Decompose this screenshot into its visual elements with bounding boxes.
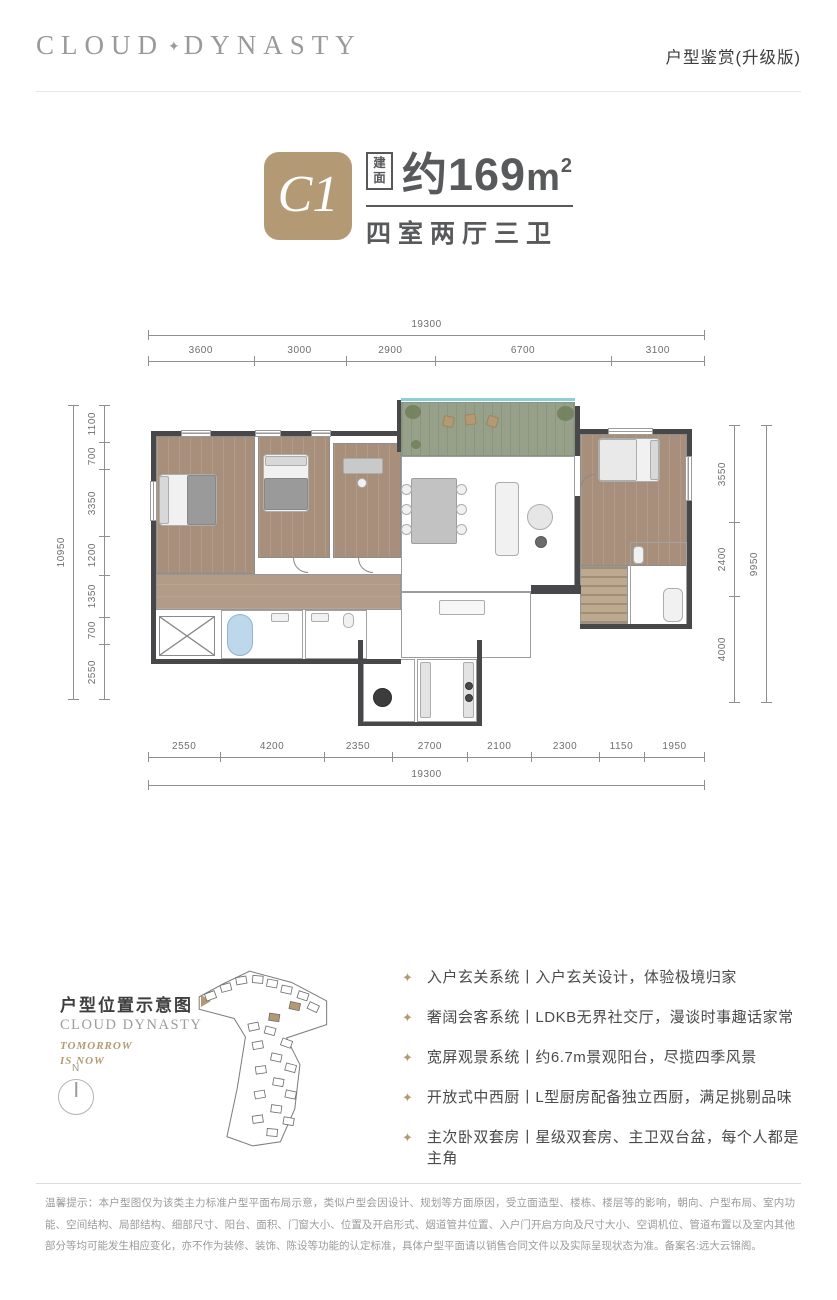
unit-badge: C1 xyxy=(264,152,352,240)
building-footprint xyxy=(252,975,263,983)
unit-divider xyxy=(366,205,573,207)
area-number: 约169 xyxy=(402,149,526,200)
area-label-box: 建面 xyxy=(366,152,393,190)
dim-label: 4200 xyxy=(220,740,323,752)
room-hallway xyxy=(156,574,401,610)
plant-icon xyxy=(411,440,421,449)
building-footprint xyxy=(252,1041,263,1050)
chair-icon xyxy=(456,504,467,515)
header-divider xyxy=(36,91,801,92)
dim-segment: 4200 xyxy=(220,740,323,762)
dim-label: 2350 xyxy=(324,740,393,752)
building-footprint xyxy=(283,1117,294,1126)
compass-needle xyxy=(75,1082,77,1097)
door-arc-icon xyxy=(293,558,308,573)
balcony-chair-icon xyxy=(442,415,455,428)
unit-rooms: 四室两厅三卫 xyxy=(366,214,573,250)
slogan-line-1: TOMORROW xyxy=(60,1039,133,1054)
chair-icon xyxy=(401,504,412,515)
feature-item: ✦主次卧双套房丨星级双套房、主卫双台盆，每个人都是主角 xyxy=(402,1127,801,1169)
dim-segment: 19300 xyxy=(148,768,705,790)
dim-label: 19300 xyxy=(148,768,705,780)
dim-label: 6700 xyxy=(435,344,611,356)
dim-label: 3350 xyxy=(87,491,98,515)
window-icon xyxy=(150,481,157,521)
balcony-chair-icon xyxy=(464,413,476,425)
dim-label: 2550 xyxy=(148,740,220,752)
site-plan-map xyxy=(196,965,336,1150)
dim-segment: 4000 xyxy=(716,596,742,703)
bed-pillow-icon xyxy=(159,476,169,524)
wall xyxy=(531,585,581,594)
dim-label: 19300 xyxy=(148,318,705,330)
dim-label: 3100 xyxy=(611,344,705,356)
footer-divider xyxy=(36,1183,801,1184)
building-footprint xyxy=(252,1115,263,1124)
dim-top-total: 19300 xyxy=(148,318,705,340)
dim-label: 2700 xyxy=(392,740,467,752)
dim-label: 2300 xyxy=(531,740,599,752)
star-bullet-icon: ✦ xyxy=(402,1127,413,1148)
logo-word-left: CLOUD xyxy=(36,30,164,60)
door-arc-icon xyxy=(358,558,373,573)
feature-item: ✦宽屏观景系统丨约6.7m景观阳台，尽揽四季风景 xyxy=(402,1047,801,1068)
unit-banner: C1 建面 约169m2 四室两厅三卫 xyxy=(0,152,837,250)
bed-pillow-icon xyxy=(265,456,307,466)
stove-burner-icon xyxy=(465,694,473,702)
wall xyxy=(151,659,401,664)
elevator-shaft xyxy=(159,616,215,656)
dim-label: 2900 xyxy=(346,344,436,356)
dim-segment: 6700 xyxy=(435,344,611,366)
feature-text: 入户玄关系统丨入户玄关设计，体验极境归家 xyxy=(427,967,737,988)
dim-right-total: 9950 xyxy=(748,425,774,703)
disclaimer-text: 温馨提示：本户型图仅为该类主力标准户型平面布局示意，类似户型会因设计、规划等方面… xyxy=(45,1193,795,1258)
dim-segment: 1150 xyxy=(599,740,644,762)
washing-machine-icon xyxy=(373,688,392,707)
dim-label: 10950 xyxy=(56,537,67,567)
dim-segment: 2550 xyxy=(86,644,112,700)
feature-item: ✦奢阔会客系统丨LDKB无界社交厅，漫谈时事趣话家常 xyxy=(402,1007,801,1028)
highlighted-building xyxy=(269,1013,280,1022)
dim-bottom-total: 19300 xyxy=(148,768,705,790)
feature-text: 奢阔会客系统丨LDKB无界社交厅，漫谈时事趣话家常 xyxy=(427,1007,794,1028)
room-balcony xyxy=(401,402,575,456)
dim-segment: 3350 xyxy=(86,469,112,536)
stool-icon xyxy=(535,536,547,548)
dim-segment: 700 xyxy=(86,442,112,469)
balcony-glass-rail xyxy=(401,398,575,401)
feature-item: ✦开放式中西厨丨L型厨房配备独立西厨，满足挑剔品味 xyxy=(402,1087,801,1108)
dim-segment: 2300 xyxy=(531,740,599,762)
bed-blanket-icon xyxy=(599,439,637,481)
dim-label: 3550 xyxy=(717,462,728,486)
floor-plan-section: 19300 36003000290067003100 2550420023502… xyxy=(0,310,837,810)
toilet-icon xyxy=(343,613,354,628)
page-title: 户型鉴赏(升级版) xyxy=(666,44,802,68)
dim-segment: 3550 xyxy=(716,425,742,522)
star-icon: ✦ xyxy=(164,40,184,55)
building-footprint xyxy=(297,991,309,1001)
wall xyxy=(477,640,482,726)
sofa-icon xyxy=(495,482,519,556)
dim-label: 2400 xyxy=(717,547,728,571)
area-unit: m xyxy=(526,157,561,199)
logo-word-right: DYNASTY xyxy=(184,30,362,60)
window-icon xyxy=(311,430,331,437)
desk-icon xyxy=(343,458,383,474)
dim-right-segments: 355024004000 xyxy=(716,425,742,703)
building-footprint xyxy=(307,1002,319,1013)
building-footprint xyxy=(285,1063,297,1073)
window-icon xyxy=(685,456,692,501)
plant-icon xyxy=(405,405,421,419)
room-master-closet xyxy=(580,566,628,624)
chair-icon xyxy=(456,524,467,535)
location-title: 户型位置示意图 xyxy=(60,991,193,1016)
dim-label: 700 xyxy=(87,447,98,465)
wall xyxy=(358,640,363,726)
star-bullet-icon: ✦ xyxy=(402,1007,413,1028)
dim-segment: 9950 xyxy=(748,425,774,703)
window-icon xyxy=(255,430,281,437)
bed-blanket-icon xyxy=(187,475,216,525)
dim-top-segments: 36003000290067003100 xyxy=(148,344,705,366)
dim-segment: 700 xyxy=(86,617,112,644)
dim-label: 3000 xyxy=(254,344,346,356)
dim-label: 2550 xyxy=(87,660,98,684)
compass-n-label: N xyxy=(72,1063,79,1074)
dim-label: 2100 xyxy=(467,740,531,752)
wall xyxy=(151,431,156,664)
dim-segment: 3000 xyxy=(254,344,346,366)
plant-icon xyxy=(557,406,574,421)
dim-segment: 3100 xyxy=(611,344,705,366)
sink-icon xyxy=(633,546,644,564)
kitchen-island-icon xyxy=(439,600,485,615)
dim-label: 700 xyxy=(87,621,98,639)
star-bullet-icon: ✦ xyxy=(402,1047,413,1068)
star-bullet-icon: ✦ xyxy=(402,1087,413,1108)
dim-label: 1200 xyxy=(87,543,98,567)
stove-burner-icon xyxy=(465,682,473,690)
unit-area: 约169m2 xyxy=(402,152,573,197)
wall xyxy=(397,400,401,452)
bed-pillow-icon xyxy=(650,440,659,480)
dim-label: 9950 xyxy=(749,552,760,576)
window-icon xyxy=(608,428,653,435)
dim-segment: 1200 xyxy=(86,536,112,575)
slogan-line-2: IS NOW xyxy=(60,1054,133,1069)
dim-segment: 2550 xyxy=(148,740,220,762)
bed-blanket-icon xyxy=(264,478,308,510)
feature-text: 开放式中西厨丨L型厨房配备独立西厨，满足挑剔品味 xyxy=(427,1087,792,1108)
building-footprint xyxy=(273,1078,284,1087)
dim-left-segments: 11007003350120013507002550 xyxy=(86,405,112,700)
bathtub-icon xyxy=(227,614,253,656)
elevator-x-icon xyxy=(160,617,214,655)
brand-logo: CLOUD✦DYNASTY xyxy=(36,30,362,61)
building-footprint xyxy=(285,1090,297,1099)
bathtub-icon xyxy=(663,588,683,622)
location-slogan: TOMORROW IS NOW xyxy=(60,1039,133,1070)
dim-segment: 1950 xyxy=(644,740,705,762)
building-footprint xyxy=(254,1090,265,1099)
dim-bottom-segments: 25504200235027002100230011501950 xyxy=(148,740,705,762)
building-footprint xyxy=(264,1026,276,1036)
dim-label: 1150 xyxy=(599,740,644,752)
chair-icon xyxy=(456,484,467,495)
dim-segment: 1350 xyxy=(86,575,112,616)
dim-segment: 2700 xyxy=(392,740,467,762)
kitchen-counter-icon xyxy=(420,662,431,718)
dining-table-icon xyxy=(411,478,457,544)
building-footprint xyxy=(271,1105,282,1114)
dim-label: 3600 xyxy=(148,344,254,356)
feature-item: ✦入户玄关系统丨入户玄关设计，体验极境归家 xyxy=(402,967,801,988)
floor-plan xyxy=(143,396,700,728)
building-footprint xyxy=(204,991,216,1001)
building-footprint xyxy=(280,1038,292,1048)
dim-segment: 19300 xyxy=(148,318,705,340)
building-footprint xyxy=(271,1053,283,1062)
unit-area-row: 建面 约169m2 xyxy=(366,152,573,197)
dim-segment: 2100 xyxy=(467,740,531,762)
feature-list: ✦入户玄关系统丨入户玄关设计，体验极境归家✦奢阔会客系统丨LDKB无界社交厅，漫… xyxy=(402,967,801,1188)
dim-segment: 10950 xyxy=(55,405,81,700)
brochure-page: CLOUD✦DYNASTY 户型鉴赏(升级版) C1 建面 约169m2 四室两… xyxy=(0,0,837,1300)
dim-label: 1100 xyxy=(87,412,98,436)
dim-segment: 3600 xyxy=(148,344,254,366)
dim-segment: 2900 xyxy=(346,344,436,366)
wall xyxy=(580,624,692,629)
sink-icon xyxy=(311,613,329,622)
location-brand: CLOUD DYNASTY xyxy=(60,1017,202,1034)
bottom-section: 户型位置示意图 CLOUD DYNASTY TOMORROW IS NOW N … xyxy=(36,955,801,1175)
star-bullet-icon: ✦ xyxy=(402,967,413,988)
building-footprint xyxy=(236,976,247,985)
building-footprint xyxy=(281,985,293,994)
kitchen-counter-icon xyxy=(463,662,474,718)
building-footprint xyxy=(255,1066,266,1075)
compass-icon xyxy=(58,1079,94,1115)
chair-icon xyxy=(357,478,367,488)
chair-icon xyxy=(401,484,412,495)
dim-segment: 2400 xyxy=(716,522,742,596)
building-footprint xyxy=(248,1022,260,1031)
wall xyxy=(575,496,580,592)
window-icon xyxy=(181,430,211,437)
sink-icon xyxy=(271,613,289,622)
dim-segment: 1100 xyxy=(86,405,112,442)
coffee-table-icon xyxy=(527,504,553,530)
feature-text: 宽屏观景系统丨约6.7m景观阳台，尽揽四季风景 xyxy=(427,1047,757,1068)
feature-text: 主次卧双套房丨星级双套房、主卫双台盆，每个人都是主角 xyxy=(427,1127,801,1169)
dim-label: 1950 xyxy=(644,740,705,752)
wall xyxy=(358,722,482,726)
area-unit-sup: 2 xyxy=(561,155,573,177)
building-footprint xyxy=(267,1128,278,1136)
dim-label: 1350 xyxy=(87,584,98,608)
chair-icon xyxy=(401,524,412,535)
unit-info: 建面 约169m2 四室两厅三卫 xyxy=(366,152,573,250)
highlighted-building xyxy=(289,1002,301,1011)
building-footprint xyxy=(266,979,277,988)
dim-label: 4000 xyxy=(717,637,728,661)
dim-segment: 2350 xyxy=(324,740,393,762)
dim-left-total: 10950 xyxy=(55,405,81,700)
